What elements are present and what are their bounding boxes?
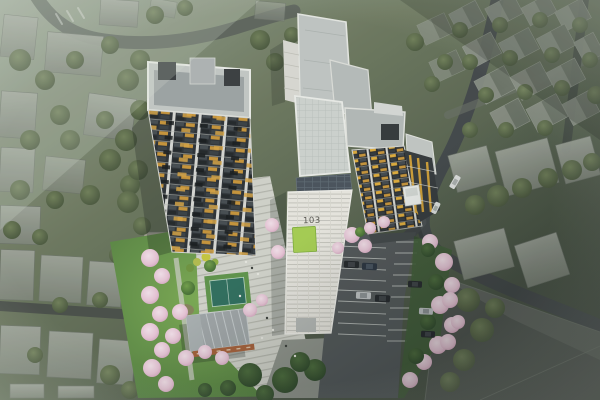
rendering-canvas: 103 [0,0,600,400]
aerial-rendering: 103 [0,0,600,400]
atmosphere-overlays [0,0,600,400]
